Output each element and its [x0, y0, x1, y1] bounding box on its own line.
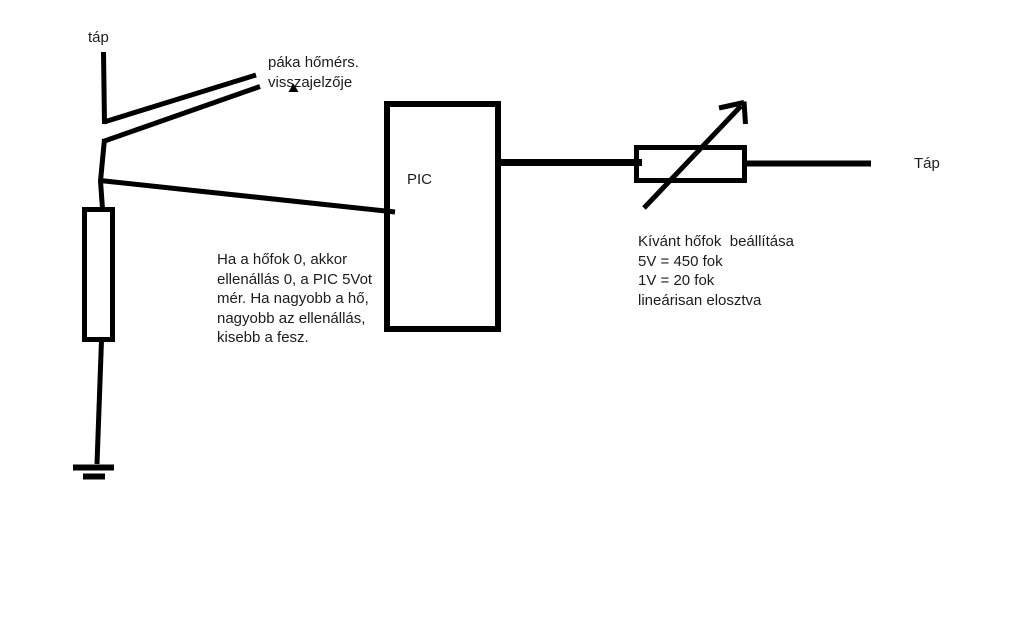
circuit-drawing [0, 0, 1035, 633]
power-label-right: Táp [914, 155, 940, 173]
power-lead-line [104, 52, 105, 124]
power-label-left: táp [88, 29, 109, 47]
right-note-line-1: Kívánt hőfok beállítása [638, 232, 794, 252]
potentiometer-body [637, 148, 745, 181]
pic-input-wire [100, 181, 395, 213]
left-note-line-4: nagyobb az ellenállás, [217, 309, 372, 329]
right-note: Kívánt hőfok beállítása 5V = 450 fok 1V … [638, 232, 794, 310]
pic-box [387, 104, 498, 329]
right-note-line-3: 1V = 20 fok [638, 271, 794, 291]
right-note-line-2: 5V = 450 fok [638, 252, 794, 272]
sensor-label-line2: visszajelzője [268, 74, 352, 92]
left-note-line-1: Ha a hőfok 0, akkor [217, 250, 372, 270]
sensor-label-line1: páka hőmérs. [268, 54, 359, 72]
resistor-body [85, 210, 113, 340]
pic-label: PIC [407, 171, 432, 189]
left-note: Ha a hőfok 0, akkor ellenállás 0, a PIC … [217, 250, 372, 348]
left-note-line-2: ellenállás 0, a PIC 5Vot [217, 270, 372, 290]
junction-vertical-line [101, 139, 105, 209]
potentiometer-arrow-shaft [644, 106, 741, 208]
paint-canvas: { "canvas": { "background_color": "#ffff… [0, 0, 1035, 633]
left-note-line-3: mér. Ha nagyobb a hő, [217, 289, 372, 309]
right-note-line-4: lineárisan elosztva [638, 291, 794, 311]
left-note-line-5: kisebb a fesz. [217, 328, 372, 348]
potentiometer-arrowhead-down-barb [744, 102, 746, 125]
ground-lead-line [97, 340, 102, 464]
